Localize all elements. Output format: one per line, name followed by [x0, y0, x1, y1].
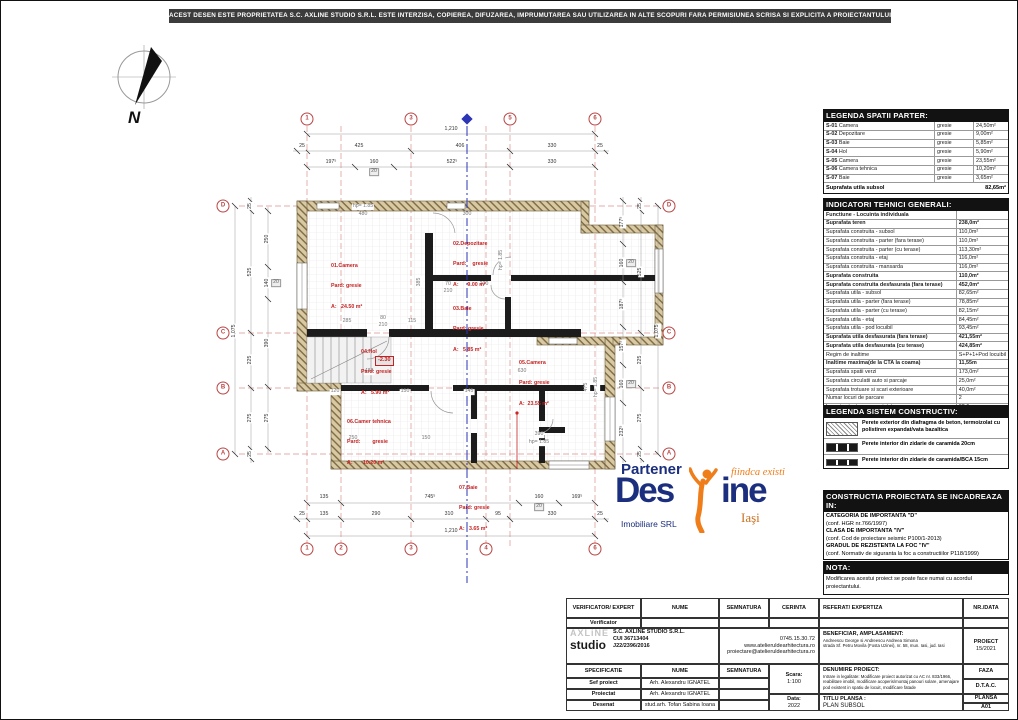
grid-axis-bubble: B	[663, 382, 676, 395]
website: www.atelieruldearhitectura.ro	[744, 643, 815, 650]
dim-label: 330	[547, 512, 558, 518]
legend-spatii-row: S-03 Baie gresie 5,85m²	[824, 139, 1008, 148]
dim-label: 160	[620, 258, 626, 269]
grid-axis-bubble: A	[217, 448, 230, 461]
indicatori-row: Suprafata utila - subsol 82,65m²	[824, 289, 1008, 298]
grid-axis-bubble: C	[217, 327, 230, 340]
dim-label: 20	[626, 259, 636, 267]
dim-label: 210	[378, 323, 389, 329]
titlu-cell: TITLU PLANSA : PLAN SUBSOL	[819, 694, 963, 711]
total-label: Suprafata utila subsol	[826, 185, 884, 191]
indicatori-row: Suprafata construita - etaj 116,0m²	[824, 254, 1008, 263]
room-label: 07.Baie Pard: gresie A: 3.65 m²	[459, 471, 490, 547]
plansa-label-cell: PLANSA	[963, 694, 1009, 703]
grid-axis-bubble: 3	[405, 113, 418, 126]
sef-name: Arh. Alexandru IGNATEL	[641, 678, 719, 689]
logo-des-text: Des	[615, 473, 673, 508]
logo-subtitle: Imobiliare SRL	[621, 519, 677, 529]
empty-cell	[719, 689, 769, 700]
header-cerinta: CERINTA	[769, 598, 819, 618]
plansa-value-cell: A01	[963, 703, 1009, 711]
verificator-row: Verificator	[566, 618, 641, 628]
dim-label: 25	[248, 450, 254, 458]
header-nume2: NUME	[641, 664, 719, 678]
dim-label: 1,210	[444, 529, 459, 535]
dim-label: 385	[417, 277, 423, 288]
total-value: 82,65m²	[985, 185, 1006, 191]
brick-wall-15-swatch-icon	[826, 459, 858, 466]
nota-text: Modificarea acestui proiect se poate fac…	[824, 574, 1008, 594]
legend-spatii-row: S-05 Camera gresie 23,55m²	[824, 157, 1008, 166]
dim-label: 135	[319, 512, 330, 518]
legend-spatii-row: S-07 Baie gresie 3,65m²	[824, 174, 1008, 183]
dancing-figure-icon	[689, 467, 719, 533]
indicatori-row: Numar locuri de parcare 2	[824, 394, 1008, 403]
sef-label: Sef proiect	[566, 678, 641, 689]
indicatori-row: Suprafata utila - pod locuibil 93,45m²	[824, 324, 1008, 333]
dim-label: 187⁵	[620, 298, 626, 311]
room-label: 04.Hol Pard: gresie A: 5.90 m²	[361, 335, 392, 411]
indicatori-row: Suprafata utila - parter (cu terase) 82,…	[824, 307, 1008, 316]
dim-label: hp= 1.85	[499, 249, 505, 271]
denumire-cell: DENUMIRE PROIECT: Intrare in legalitate:…	[819, 664, 963, 694]
scara-cell: Scara: 1:100	[769, 664, 819, 694]
legend-spatii-row: S-06 Camera tehnica gresie 10,20m²	[824, 165, 1008, 174]
indicatori-row: Suprafata construita desfasurata (fara t…	[824, 281, 1008, 290]
dim-label: 406	[455, 144, 466, 150]
dim-label: 135	[319, 495, 330, 501]
company-cell: AXLiNE studio S.C. AXLINE STUDIO S.R.L. …	[566, 628, 719, 664]
dim-label: 525	[638, 267, 644, 278]
faza-label-cell: FAZA	[963, 664, 1009, 679]
phone: 0745.15.30.72	[780, 636, 815, 643]
legend-sistem-panel: LEGENDA SISTEM CONSTRUCTIV: Perete exter…	[823, 405, 1009, 469]
grid-axis-bubble: 1	[301, 113, 314, 126]
indicatori-row: Suprafata utila - parter (fara terase) 7…	[824, 298, 1008, 307]
grid-axis-bubble: 3	[405, 543, 418, 556]
legend-spatii-row: S-04 Hol gresie 5,90m²	[824, 148, 1008, 157]
grid-axis-bubble: D	[217, 200, 230, 213]
indicatori-row: Suprafata teren 238,0m²	[824, 219, 1008, 228]
dim-label: 250	[265, 234, 271, 245]
dim-label: 25	[298, 144, 306, 150]
indicatori-panel: INDICATORI TEHNICI GENERALI: Functiune -…	[823, 198, 1009, 431]
dim-label: 20	[626, 380, 636, 388]
dim-label: 310	[444, 512, 455, 518]
dim-label: 390	[265, 338, 271, 349]
proiectat-label: Proiectat	[566, 689, 641, 700]
dim-label: 20	[271, 279, 281, 287]
indicatori-row: Regim de inaltime S+P+1+Pod locuibil	[824, 351, 1008, 360]
dim-label: 330	[547, 160, 558, 166]
constructia-line: GRADUL DE REZISTENTA LA FOC "IV"	[824, 543, 1008, 551]
faza-value-cell: D.T.A.C.	[963, 679, 1009, 694]
data-cell: Data: 2022	[769, 694, 819, 711]
header-semnatura: SEMNATURA	[719, 598, 769, 618]
grid-axis-bubble: 5	[504, 113, 517, 126]
constructia-line: (conf. Cod de proiectare seismic P100/1-…	[824, 536, 1008, 544]
indicatori-row: Suprafata utila - etaj 84,45m²	[824, 316, 1008, 325]
proiect-cell: PROIECT 15/2021	[963, 628, 1009, 664]
level-marker: -2.30	[375, 356, 394, 366]
dim-label: 160	[620, 379, 626, 390]
dim-label: 150	[421, 436, 432, 442]
dim-label: 1,075	[232, 324, 238, 339]
dim-label: 25	[596, 144, 604, 150]
title-block: VERIFICATOR/ EXPERT NUME SEMNATURA CERIN…	[566, 598, 1009, 711]
grid-axis-bubble: C	[663, 327, 676, 340]
dim-label: 300	[462, 212, 473, 218]
constructia-line: CLASA DE IMPORTANTA "IV"	[824, 528, 1008, 536]
logo-tagline: fiindca existi	[731, 467, 785, 478]
indicatori-row: Suprafata construita - mansarda 116,0m²	[824, 263, 1008, 272]
nota-title: NOTA:	[823, 561, 1009, 574]
constructia-line: (conf. HGR nr.766/1997)	[824, 521, 1008, 529]
dim-label: 20	[369, 168, 379, 176]
constructia-line: (conf. Normativ de siguranta la foc a co…	[824, 551, 1008, 559]
empty-cell	[819, 618, 963, 628]
grid-axis-bubble: 6	[589, 543, 602, 556]
dim-label: 225	[638, 355, 644, 366]
company-info: S.C. AXLINE STUDIO S.R.L. CUI 36713404 J…	[613, 629, 685, 650]
dim-label: 522⁵	[446, 160, 459, 166]
axline-logo: AXLiNE studio	[570, 629, 609, 652]
dim-label: 210	[443, 289, 454, 295]
dim-label: 160	[534, 495, 545, 501]
logo-city: Iaşi	[741, 510, 760, 526]
indicatori-row: Inaltime maxima(de la CTA la coama) 11,5…	[824, 359, 1008, 368]
sistem-row: Perete interior din zidarie de caramida …	[824, 439, 1008, 455]
dim-label: 232⁵	[620, 425, 626, 438]
nota-panel: NOTA: Modificarea acestui proiect se poa…	[823, 561, 1009, 595]
grid-axis-bubble: 6	[589, 113, 602, 126]
dim-label: 120	[330, 389, 341, 395]
indicatori-row: Functiune - Locuinta individuala	[824, 211, 1008, 219]
desenat-name: stud.arh. Tofan Sabina Ioana	[641, 700, 719, 711]
dim-label: 1,210	[444, 127, 459, 133]
dim-label: 140	[265, 278, 271, 289]
dim-label: 160	[369, 160, 380, 166]
contact-cell: 0745.15.30.72 www.atelieruldearhitectura…	[719, 628, 819, 664]
dim-label: 169⁵	[571, 495, 584, 501]
header-nrdata: NR./DATA	[963, 598, 1009, 618]
dim-label: 25	[596, 512, 604, 518]
header-specificatie: SPECIFICATIE	[566, 664, 641, 678]
dim-label: 115	[407, 319, 417, 325]
dim-label: 525	[248, 267, 254, 278]
legend-spatii-panel: LEGENDA SPATII PARTER: S-01 Camera gresi…	[823, 109, 1009, 194]
empty-cell	[719, 700, 769, 711]
indicatori-row: Suprafata utila desfasurata (cu terase) …	[824, 342, 1008, 351]
dim-label: 25	[248, 202, 254, 210]
room-label: 06.Camer tehnica Pard: gresie A: 10.20 m…	[347, 405, 391, 481]
header-verificator: VERIFICATOR/ EXPERT	[566, 598, 641, 618]
dim-label: hp= 1.85	[594, 376, 600, 398]
empty-cell	[963, 618, 1009, 628]
grid-axis-bubble: D	[663, 200, 676, 213]
legend-spatii-title: LEGENDA SPATII PARTER:	[823, 109, 1009, 122]
dim-label: 150	[400, 389, 411, 395]
constructia-line: CATEGORIA DE IMPORTANTA "D"	[824, 513, 1008, 521]
sistem-row: Perete exterior din diafragma de beton, …	[824, 418, 1008, 439]
hatch-wall-swatch-icon	[826, 422, 858, 436]
empty-cell	[641, 618, 719, 628]
room-label: 03.Baie Pard: gresie A: 5.85 m²	[453, 292, 484, 368]
dim-label: 275	[265, 413, 271, 424]
indicatori-row: Suprafata construita - parter (cu terase…	[824, 246, 1008, 255]
indicatori-row: Suprafata trotuare si scari exterioare 4…	[824, 386, 1008, 395]
desenat-label: Desenat	[566, 700, 641, 711]
constructia-title: CONSTRUCTIA PROIECTATA SE INCADREAZA IN:	[823, 490, 1009, 512]
logo-ine-text: ine	[721, 473, 766, 508]
partner-destine-logo: Partener Des ine fiindca existi Imobilia…	[613, 457, 813, 537]
legend-sistem-title: LEGENDA SISTEM CONSTRUCTIV:	[823, 405, 1009, 418]
dim-label: 390	[534, 432, 545, 438]
indicatori-row: Suprafata utila desfasurata (fara terase…	[824, 333, 1008, 342]
indicatori-row: Suprafata construita 110,0m²	[824, 272, 1008, 281]
header-nume: NUME	[641, 598, 719, 618]
indicatori-row: Suprafata construita - subsol 110,0m²	[824, 228, 1008, 237]
beneficiar-cell: BENEFICIAR, AMPLASAMENT: Andreescu Georg…	[819, 628, 963, 664]
dim-label: hp= 1.85	[528, 440, 550, 446]
header-referat: REFERAT/ EXPERTIZA	[819, 598, 963, 618]
indicatori-title: INDICATORI TEHNICI GENERALI:	[823, 198, 1009, 211]
dim-label: 157⁵	[620, 340, 626, 353]
grid-axis-bubble: 2	[335, 543, 348, 556]
dim-label: 480	[358, 212, 369, 218]
dim-label: 145	[464, 389, 475, 395]
dim-label: 177⁵	[620, 216, 626, 229]
dim-label: 330	[547, 144, 558, 150]
room-label: 05.Camera Pard: gresie A: 23.55 m²	[519, 346, 550, 422]
grid-axis-bubble: B	[217, 382, 230, 395]
dim-label: 70	[444, 282, 452, 288]
dim-label: 20	[534, 503, 544, 511]
dim-label: hp= 1.85	[352, 204, 374, 210]
dim-label: 1,075	[655, 324, 661, 339]
constructia-panel: CONSTRUCTIA PROIECTATA SE INCADREAZA IN:…	[823, 490, 1009, 560]
dim-label: 425	[354, 144, 365, 150]
dim-label: 225	[248, 355, 254, 366]
empty-cell	[769, 618, 819, 628]
empty-cell	[719, 678, 769, 689]
dim-label: 275	[638, 413, 644, 424]
grid-axis-bubble: 1	[301, 543, 314, 556]
sistem-row: Perete interior din zidarie de caramida/…	[824, 455, 1008, 468]
legend-spatii-row: S-02 Depozitare gresie 9,00m²	[824, 130, 1008, 139]
empty-cell	[719, 618, 769, 628]
indicatori-row: Suprafata construita - parter (fara tera…	[824, 237, 1008, 246]
header-semnatura2: SEMNATURA	[719, 664, 769, 678]
dim-label: 275	[248, 413, 254, 424]
dim-label: 745⁵	[424, 495, 437, 501]
email: proiectare@atelieruldearhitectura.ro	[727, 649, 815, 656]
indicatori-row: Suprafata spatii verzi 173,0m²	[824, 368, 1008, 377]
drawing-sheet: ACEST DESEN ESTE PROPRIETATEA S.C. AXLIN…	[0, 0, 1018, 720]
dim-label: 197⁵	[325, 160, 338, 166]
dim-label: 475	[584, 382, 590, 393]
legend-spatii-row: S-01 Camera gresie 24,50m²	[824, 122, 1008, 130]
room-label: 01.Camera Pard: gresie A: 24.50 m²	[331, 249, 362, 325]
dim-label: 95	[494, 512, 502, 518]
dim-label: 80	[379, 316, 387, 322]
indicatori-row: Suprafata circulatii auto si parcaje 25,…	[824, 377, 1008, 386]
proiectat-name: Arh. Alexandru IGNATEL	[641, 689, 719, 700]
dim-label: 290	[371, 512, 382, 518]
dim-label: 25	[298, 512, 306, 518]
dim-label: 25	[638, 202, 644, 210]
brick-wall-20-swatch-icon	[826, 443, 858, 452]
